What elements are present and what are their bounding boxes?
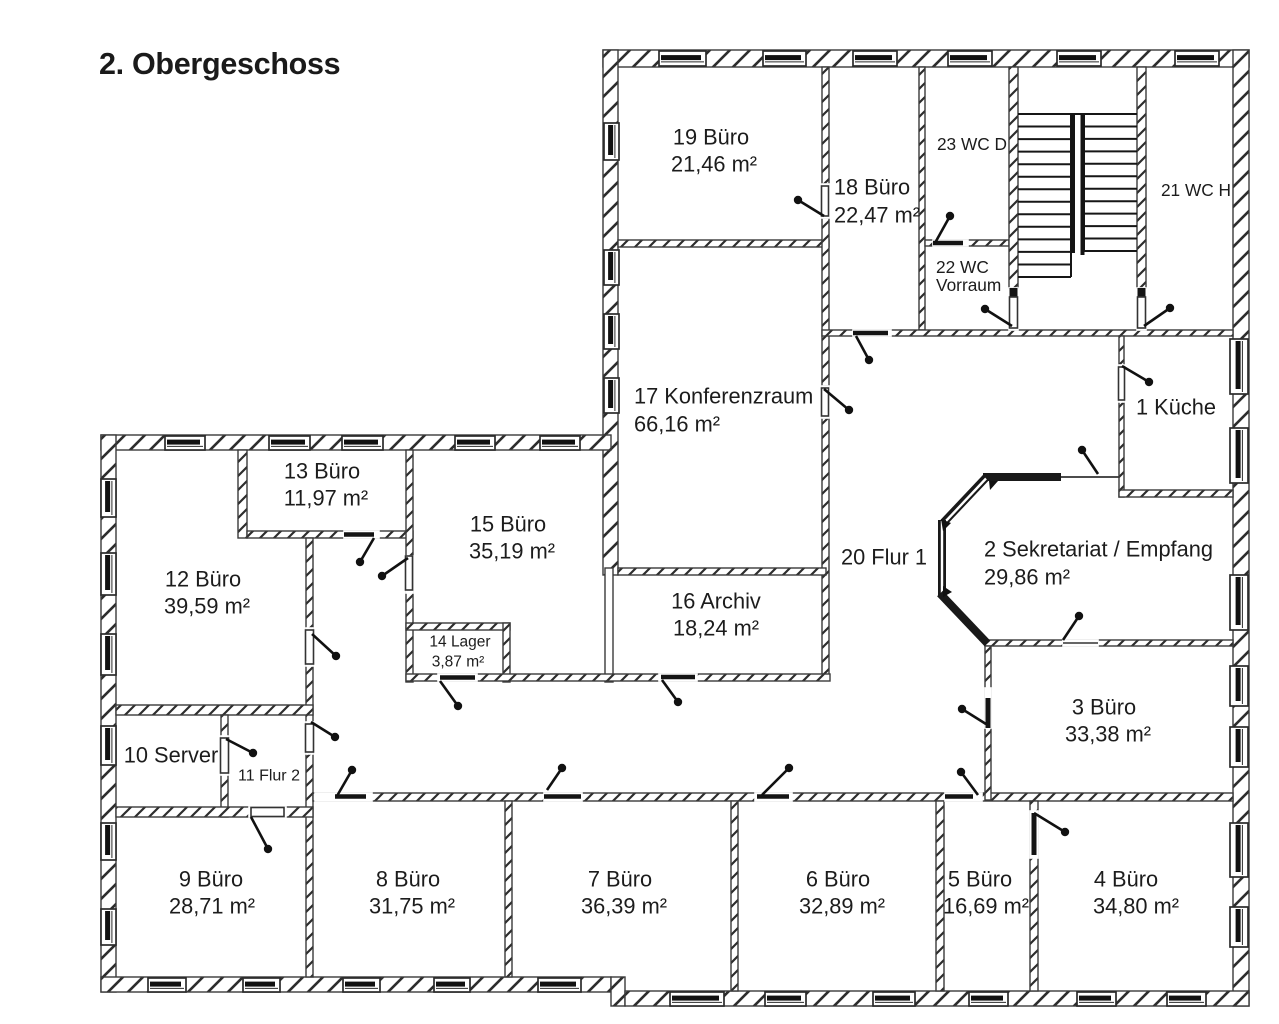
svg-text:13 Büro: 13 Büro [284,459,360,484]
svg-text:1 Küche: 1 Küche [1136,395,1216,420]
svg-text:32,89 m²: 32,89 m² [799,894,885,919]
svg-text:5 Büro: 5 Büro [948,867,1012,892]
svg-text:20 Flur 1: 20 Flur 1 [841,545,927,570]
svg-text:35,19 m²: 35,19 m² [469,539,555,564]
svg-text:11,97 m²: 11,97 m² [284,486,368,511]
svg-text:16 Archiv: 16 Archiv [671,589,761,614]
svg-text:21 WC H: 21 WC H [1161,180,1231,200]
svg-text:23 WC D: 23 WC D [937,134,1007,154]
svg-text:28,71 m²: 28,71 m² [169,894,255,919]
svg-text:34,80 m²: 34,80 m² [1093,894,1179,919]
svg-text:14 Lager: 14 Lager [429,633,490,650]
svg-text:21,46 m²: 21,46 m² [671,152,757,177]
svg-text:3,87 m²: 3,87 m² [432,653,485,670]
svg-text:8 Büro: 8 Büro [376,867,440,892]
svg-text:3 Büro: 3 Büro [1072,695,1136,720]
svg-text:12 Büro: 12 Büro [165,567,241,592]
svg-text:Vorraum: Vorraum [936,275,1001,295]
svg-text:2. Obergeschoss: 2. Obergeschoss [99,47,340,81]
svg-text:15 Büro: 15 Büro [470,512,546,537]
svg-text:18,24 m²: 18,24 m² [673,616,759,641]
svg-text:7 Büro: 7 Büro [588,867,652,892]
svg-text:9 Büro: 9 Büro [179,867,243,892]
svg-text:2 Sekretariat / Empfang: 2 Sekretariat / Empfang [984,537,1213,562]
svg-text:4 Büro: 4 Büro [1094,867,1158,892]
svg-text:29,86 m²: 29,86 m² [984,565,1070,590]
svg-text:66,16 m²: 66,16 m² [634,412,720,437]
svg-text:18 Büro: 18 Büro [834,175,910,200]
svg-text:19 Büro: 19 Büro [673,125,749,150]
svg-text:6 Büro: 6 Büro [806,867,870,892]
svg-text:33,38 m²: 33,38 m² [1065,722,1151,747]
svg-text:31,75 m²: 31,75 m² [369,894,455,919]
svg-text:22 WC: 22 WC [936,257,989,277]
svg-text:17 Konferenzraum: 17 Konferenzraum [634,384,813,409]
svg-text:16,69 m²: 16,69 m² [943,894,1029,919]
svg-text:36,39 m²: 36,39 m² [581,894,667,919]
svg-text:22,47 m²: 22,47 m² [834,203,920,228]
svg-text:11 Flur 2: 11 Flur 2 [238,768,300,785]
svg-text:10 Server: 10 Server [124,743,219,768]
svg-text:39,59 m²: 39,59 m² [164,594,250,619]
